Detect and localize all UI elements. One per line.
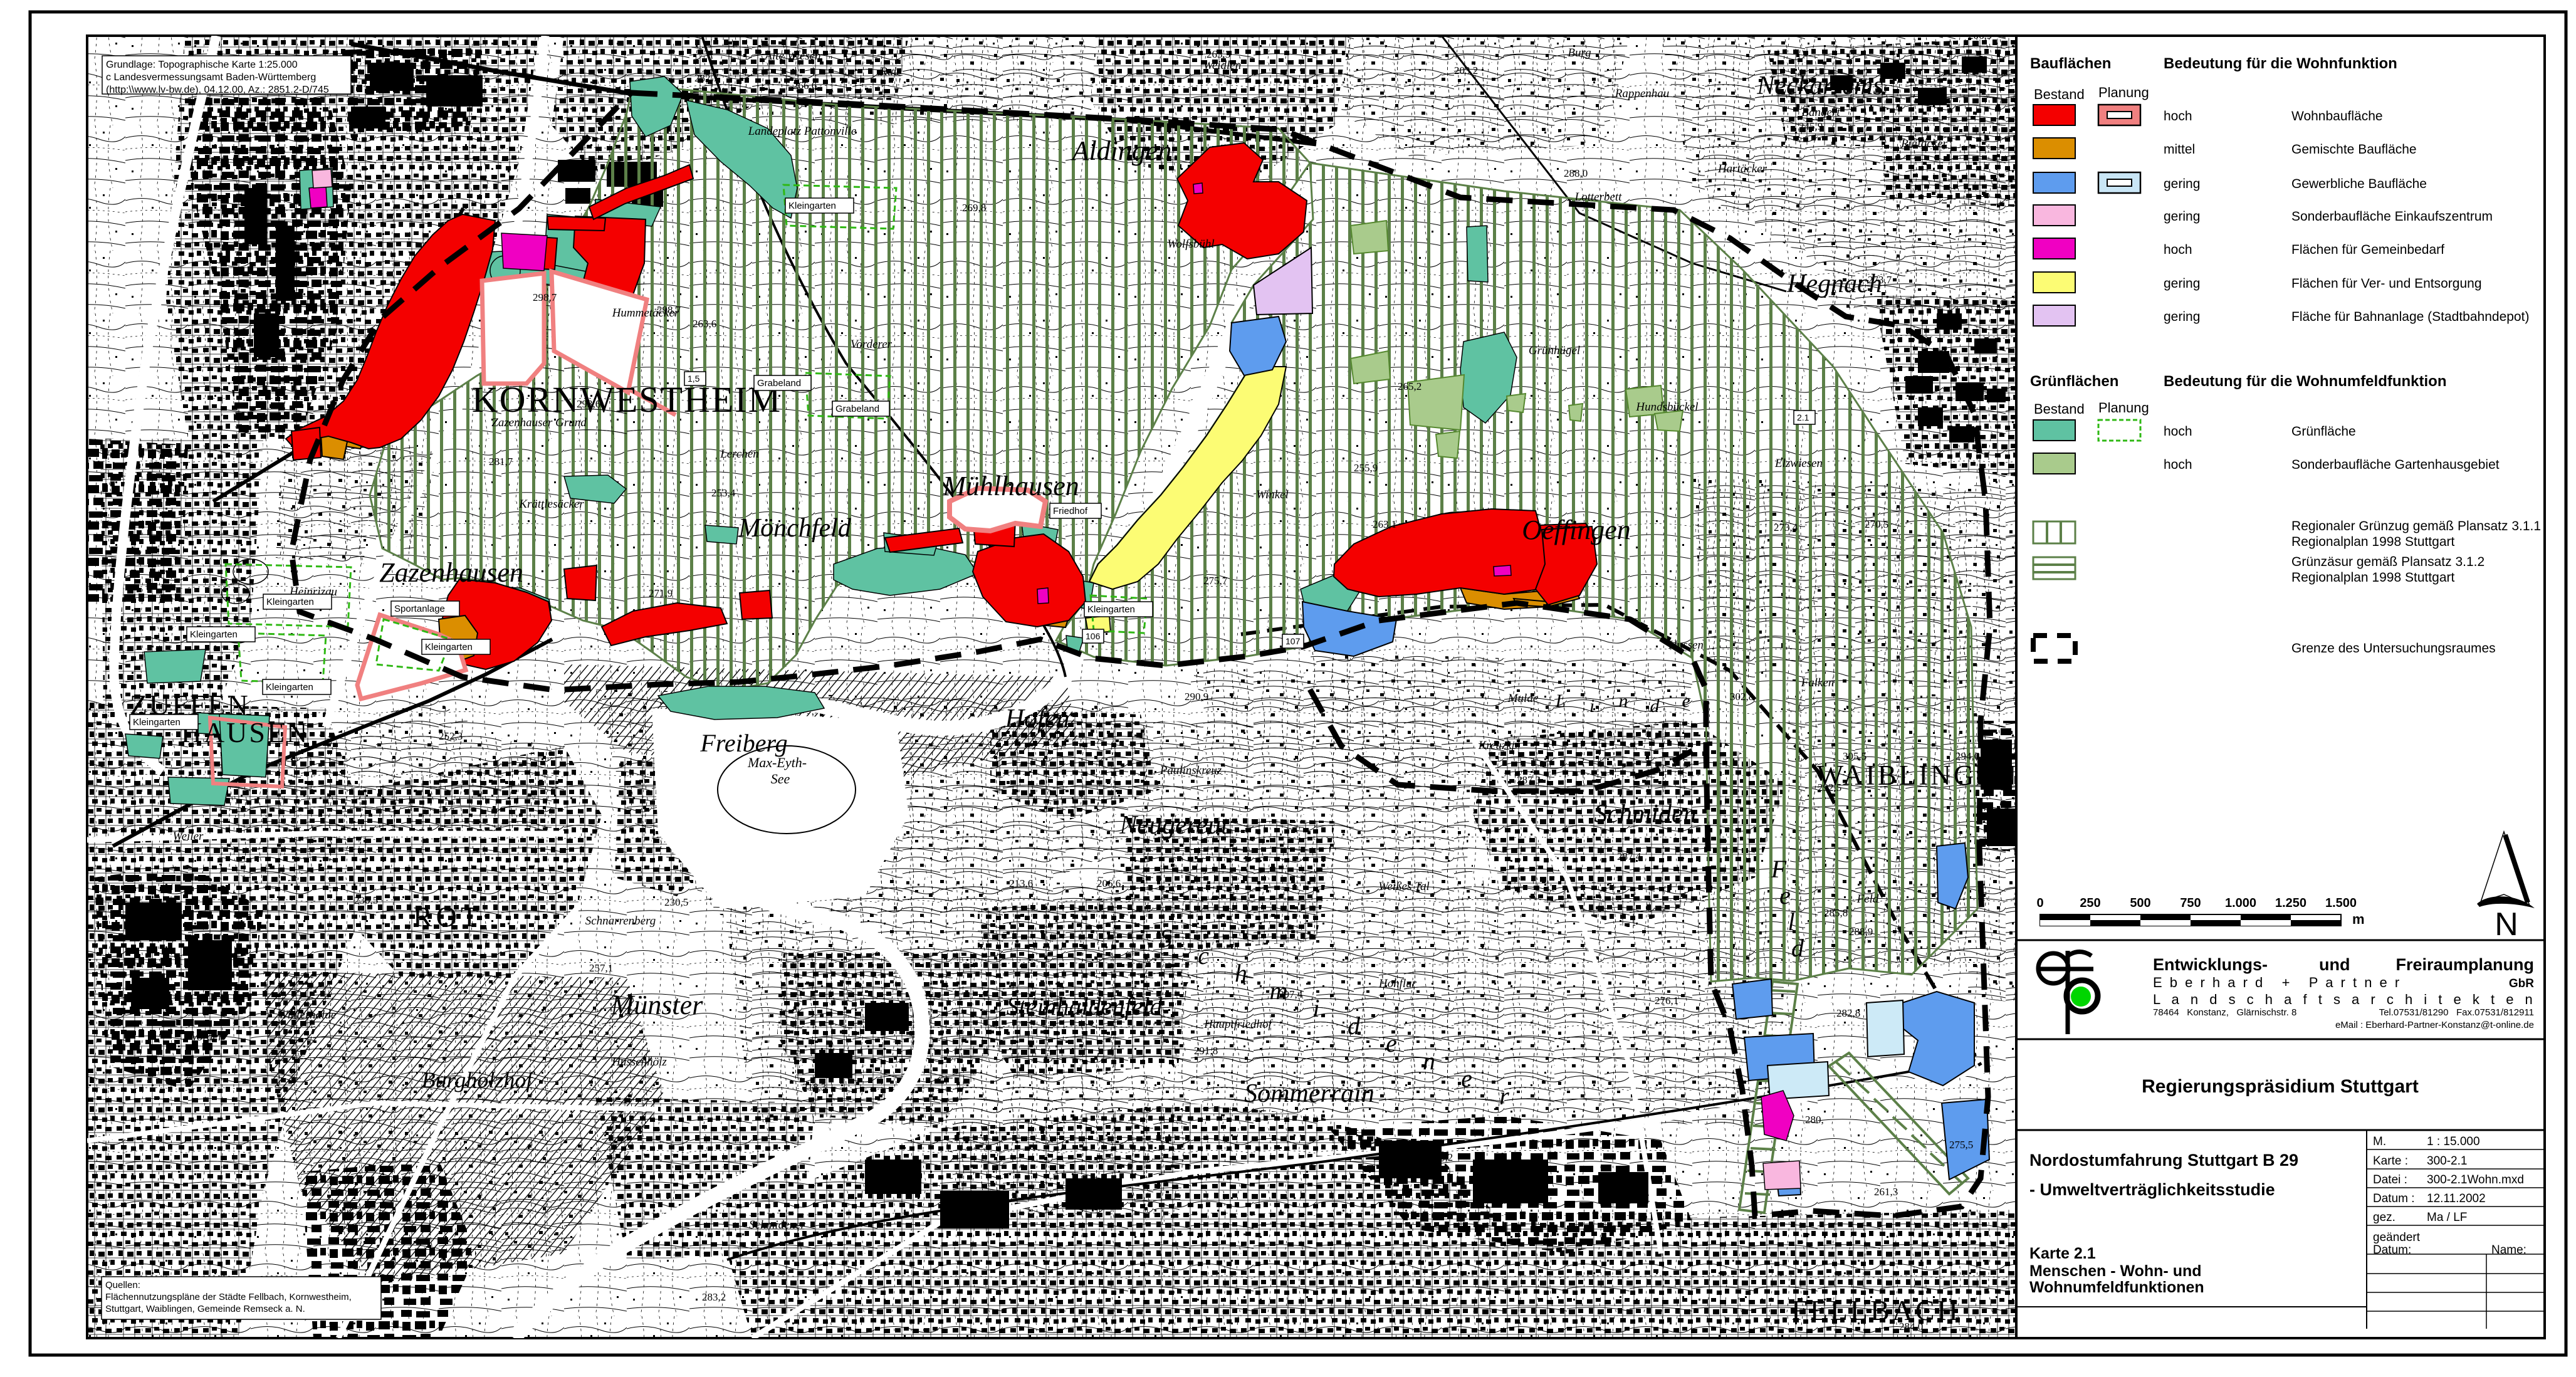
svg-text:Kleingarten: Kleingarten [266, 682, 313, 693]
svg-text:290,9: 290,9 [1185, 691, 1208, 703]
svg-text:Aldingen: Aldingen [1071, 135, 1172, 166]
svg-text:291,8: 291,8 [1194, 1045, 1218, 1057]
svg-text:1,5: 1,5 [688, 374, 700, 384]
svg-text:Fläche für Bahnanlage (Stadtba: Fläche für Bahnanlage (Stadtbahndepot) [2291, 310, 2529, 324]
svg-text:n: n [1619, 691, 1628, 711]
svg-text:d: d [1348, 1012, 1361, 1040]
svg-text:273,4: 273,4 [1774, 521, 1798, 533]
svg-text:gez.: gez. [2373, 1211, 2395, 1224]
svg-text:Kleingarten: Kleingarten [788, 201, 836, 211]
svg-text:302,8: 302,8 [1730, 691, 1754, 703]
svg-text:292,5: 292,5 [1818, 782, 1841, 793]
svg-text:1.500: 1.500 [2325, 896, 2357, 910]
svg-text:Neckarrems: Neckarrems [1756, 71, 1883, 100]
svg-text:305,5: 305,5 [1843, 750, 1867, 762]
svg-text:e: e [1682, 691, 1690, 711]
svg-text:297,4: 297,4 [1279, 988, 1303, 1000]
svg-text:Sonderbaufläche Gartenhausgebi: Sonderbaufläche Gartenhausgebiet [2291, 458, 2500, 472]
svg-text:Sonderbaufläche Einkaufszentru: Sonderbaufläche Einkaufszentrum [2291, 209, 2493, 224]
svg-text:500: 500 [2130, 896, 2150, 910]
svg-text:Quellen:: Quellen: [105, 1280, 140, 1291]
svg-text:eMail : Eberhard-Partner-Konst: eMail : Eberhard-Partner-Konstanz@t-onli… [2335, 1020, 2534, 1030]
svg-text:Steinhaldenfeld: Steinhaldenfeld [1007, 992, 1163, 1020]
svg-text:Münster: Münster [610, 990, 704, 1020]
svg-text:286,2: 286,2 [1429, 1151, 1453, 1163]
svg-text:WAIBLINGEN: WAIBLINGEN [1817, 760, 2019, 791]
svg-text:78464 Konstanz, Glärnischs: 78464 Konstanz, Glärnischstr. 8 [2153, 1007, 2296, 1018]
svg-text:203,2: 203,2 [1454, 65, 1478, 76]
svg-text:gering: gering [2164, 177, 2200, 191]
svg-text:Schmiden: Schmiden [1594, 800, 1696, 829]
svg-text:Sommerrain: Sommerrain [1244, 1079, 1374, 1108]
svg-text:Bangert: Bangert [1801, 106, 1840, 119]
svg-text:0: 0 [2036, 896, 2043, 910]
svg-text:und: und [2319, 955, 2350, 974]
svg-text:Hundsbückel: Hundsbückel [1635, 401, 1698, 414]
svg-text:gering: gering [2164, 209, 2200, 224]
svg-text:Datum:: Datum: [2373, 1243, 2411, 1257]
svg-text:Entwicklungs-: Entwicklungs- [2153, 955, 2268, 974]
svg-text:Regierungspräsidium Stuttgart: Regierungspräsidium Stuttgart [2142, 1076, 2419, 1097]
svg-text:Freiraumplanung: Freiraumplanung [2395, 955, 2534, 974]
svg-text:Wolfsbühl: Wolfsbühl [1167, 238, 1214, 251]
svg-text:1.250: 1.250 [2275, 896, 2306, 910]
svg-text:Lerchen: Lerchen [720, 448, 759, 461]
svg-text:107: 107 [1285, 636, 1301, 646]
svg-text:245,9: 245,9 [1799, 120, 1823, 132]
svg-text:1.000: 1.000 [2225, 896, 2256, 910]
svg-text:Nordostumfahrung Stuttgart B 2: Nordostumfahrung Stuttgart B 29 [2029, 1151, 2298, 1170]
svg-text:Grünzäsur gemäß Plansatz 3.1.2: Grünzäsur gemäß Plansatz 3.1.2 [2291, 555, 2484, 569]
svg-text:hoch: hoch [2164, 109, 2192, 123]
svg-text:Mühlhausen: Mühlhausen [942, 471, 1079, 501]
svg-text:206,6: 206,6 [1097, 877, 1121, 889]
svg-text:d: d [1791, 934, 1804, 962]
svg-text:270,5: 270,5 [1865, 518, 1888, 530]
svg-text:(http:\\www.lv-bw.de), 04.12.0: (http:\\www.lv-bw.de), 04.12.00, Az.: 28… [106, 85, 329, 95]
svg-text:h: h [1235, 959, 1247, 987]
svg-text:Vorder: Vorder [191, 1030, 223, 1044]
svg-text:Bedeutung für die Wohnfunktion: Bedeutung für die Wohnfunktion [2164, 55, 2397, 72]
svg-text:KORNWESTHEIM: KORNWESTHEIM [472, 379, 782, 420]
svg-text:263,3: 263,3 [1207, 48, 1230, 60]
svg-text:gering: gering [2164, 276, 2200, 291]
svg-text:Mulde: Mulde [1507, 692, 1539, 705]
svg-text:Grünfläche: Grünfläche [2291, 424, 2356, 439]
svg-text:gering: gering [2164, 310, 2200, 324]
svg-text:Karte :: Karte : [2373, 1154, 2408, 1168]
svg-text:275,5: 275,5 [1949, 1139, 1973, 1151]
svg-text:250: 250 [2080, 896, 2100, 910]
svg-text:Weißes Tal: Weißes Tal [1378, 880, 1429, 893]
svg-text:Regionalplan 1998 Stuttgart: Regionalplan 1998 Stuttgart [2291, 570, 2455, 585]
svg-text:275,7: 275,7 [1203, 575, 1228, 587]
svg-text:FELLBACH: FELLBACH [1791, 1294, 1961, 1326]
svg-text:Neugereut: Neugereut [1119, 811, 1229, 840]
svg-text:280,: 280, [1805, 1114, 1824, 1126]
svg-text:Vorderer: Vorderer [851, 338, 893, 351]
svg-text:Regionalplan 1998 Stuttgart: Regionalplan 1998 Stuttgart [2291, 535, 2455, 549]
svg-text:261,3: 261,3 [1874, 1186, 1898, 1198]
svg-text:Friedhof: Friedhof [1053, 506, 1088, 516]
svg-text:Datei :: Datei : [2373, 1173, 2407, 1186]
svg-text:d: d [1650, 696, 1660, 716]
svg-text:263,6: 263,6 [693, 318, 716, 330]
svg-text:Kleingarten: Kleingarten [266, 597, 314, 607]
svg-text:Zazenhausen: Zazenhausen [379, 557, 523, 588]
svg-text:298,7: 298,7 [657, 304, 681, 316]
svg-text:HAUSEN: HAUSEN [181, 716, 310, 748]
svg-text:Weidlen: Weidlen [1203, 59, 1242, 72]
svg-text:282,8: 282,8 [1836, 1007, 1860, 1019]
svg-text:294,6: 294,6 [1956, 750, 1979, 762]
svg-text:281,7: 281,7 [489, 456, 513, 468]
svg-text:N: N [2495, 906, 2518, 943]
svg-text:Kleingarten: Kleingarten [425, 642, 473, 652]
svg-text:S: S [1160, 924, 1172, 952]
svg-text:Landeplatz Pattonville: Landeplatz Pattonville [748, 125, 857, 138]
svg-text:300-2.1: 300-2.1 [2427, 1154, 2467, 1168]
svg-text:Ma / LF: Ma / LF [2427, 1211, 2467, 1224]
svg-text:106: 106 [1086, 631, 1101, 641]
svg-text:Hofen: Hofen [1005, 704, 1070, 733]
svg-text:Burg: Burg [1568, 46, 1591, 60]
svg-text:Grünflächen: Grünflächen [2030, 373, 2118, 390]
svg-text:Hartäcker: Hartäcker [1717, 162, 1767, 175]
svg-text:Menschen - Wohn- und: Menschen - Wohn- und [2029, 1262, 2202, 1280]
svg-text:252,3: 252,3 [439, 730, 463, 742]
svg-text:Flächen für Gemeinbedarf: Flächen für Gemeinbedarf [2291, 243, 2444, 257]
svg-text:750: 750 [2180, 896, 2201, 910]
svg-text:- Umweltverträglichkeitsstudie: - Umweltverträglichkeitsstudie [2029, 1180, 2275, 1199]
svg-text:285,8: 285,8 [1824, 907, 1848, 919]
svg-text:266,6: 266,6 [793, 80, 817, 92]
svg-text:271,9: 271,9 [649, 587, 673, 599]
svg-text:Hauptfriedhof: Hauptfriedhof [1203, 1018, 1273, 1031]
svg-text:287,4: 287,4 [1617, 851, 1641, 862]
svg-text:Winkel: Winkel [1256, 488, 1289, 501]
svg-text:284,0: 284,0 [1899, 1321, 1923, 1332]
svg-text:r: r [1499, 1082, 1509, 1110]
svg-text:276,1: 276,1 [1655, 995, 1678, 1007]
svg-text:Zazenhauser Grund: Zazenhauser Grund [491, 416, 587, 429]
svg-text:Grünhügel: Grünhügel [1529, 344, 1580, 357]
svg-text:Hussenhölz: Hussenhölz [611, 1055, 667, 1069]
svg-text:273,7: 273,7 [1868, 274, 1892, 286]
svg-text:Kleingarten: Kleingarten [133, 717, 181, 728]
svg-text:mittel: mittel [2164, 142, 2195, 157]
svg-text:300-2.1Wohn.mxd: 300-2.1Wohn.mxd [2427, 1173, 2524, 1186]
svg-text:283,2: 283,2 [702, 1291, 726, 1303]
svg-text:Grabeland: Grabeland [757, 378, 801, 389]
svg-text:Freiberg: Freiberg [699, 729, 787, 757]
svg-text:Karte 2.1: Karte 2.1 [2029, 1245, 2096, 1262]
svg-text:Planung: Planung [2098, 85, 2149, 100]
svg-text:253,4: 253,4 [711, 487, 736, 499]
svg-text:12.11.2002: 12.11.2002 [2427, 1192, 2486, 1205]
svg-text:Bestand: Bestand [2034, 401, 2085, 417]
svg-text:GbR: GbR [2509, 977, 2534, 990]
svg-text:i: i [1589, 696, 1594, 716]
svg-text:230,5: 230,5 [664, 896, 688, 908]
svg-text:Bauflächen: Bauflächen [2030, 55, 2111, 72]
svg-text:287,3: 287,3 [1517, 774, 1541, 786]
svg-text:288,9: 288,9 [1849, 926, 1873, 938]
svg-text:1 : 15.000: 1 : 15.000 [2427, 1135, 2480, 1148]
svg-text:Gemischte Baufläche: Gemischte Baufläche [2291, 142, 2417, 157]
svg-text:269,8: 269,8 [962, 202, 986, 214]
svg-text:n: n [1423, 1047, 1435, 1075]
svg-text:e: e [1461, 1064, 1472, 1092]
svg-text:L a n d s c h a f t s a r c h: L a n d s c h a f t s a r c h i t e k t … [2153, 992, 2537, 1007]
svg-text:Wohnumfeldfunktionen: Wohnumfeldfunktionen [2029, 1279, 2204, 1296]
svg-text:Stuttgart, Waiblingen, Gemeind: Stuttgart, Waiblingen, Gemeinde Remseck … [105, 1304, 305, 1314]
svg-text:Tel.07531/81290 Fax.07531/81: Tel.07531/81290 Fax.07531/812911 [2379, 1007, 2534, 1018]
svg-text:Bedeutung für die Wohnumfeldfu: Bedeutung für die Wohnumfeldfunktion [2164, 373, 2447, 390]
svg-text:L: L [1555, 691, 1566, 711]
svg-text:m: m [2352, 911, 2365, 927]
svg-text:Elzwiesen: Elzwiesen [1774, 457, 1823, 470]
svg-text:Grundlage: Topographische Kart: Grundlage: Topographische Karte 1:25.000 [106, 60, 298, 70]
svg-text:Ruit: Ruit [879, 65, 900, 78]
svg-text:e: e [1779, 881, 1791, 909]
svg-text:hoch: hoch [2164, 424, 2192, 439]
svg-text:Flächennutzungspläne der Städt: Flächennutzungspläne der Städte Fellbach… [105, 1292, 352, 1302]
svg-text:Weiler: Weiler [173, 830, 204, 843]
svg-text:Hohflur: Hohflur [1378, 977, 1417, 990]
svg-text:Bestand: Bestand [2034, 86, 2085, 102]
svg-text:Paulinskreuz: Paulinskreuz [1160, 764, 1222, 777]
svg-text:265,2: 265,2 [1398, 380, 1422, 392]
svg-text:Planung: Planung [2098, 400, 2149, 416]
svg-text:Max-Eyth-: Max-Eyth- [747, 755, 807, 770]
svg-text:hoch: hoch [2164, 243, 2192, 257]
svg-text:263,1: 263,1 [1373, 518, 1396, 530]
svg-text:E b e r h a r d + P a r t: E b e r h a r d + P a r t n e r [2153, 975, 2401, 990]
svg-text:See: See [771, 771, 790, 787]
svg-text:257,1: 257,1 [589, 962, 613, 974]
svg-text:Alte Wiesen: Alte Wiesen [763, 50, 820, 63]
svg-text:Falken: Falken [1801, 676, 1835, 689]
svg-text:Gewerbliche Baufläche: Gewerbliche Baufläche [2291, 177, 2427, 191]
svg-text:Winterhalde: Winterhalde [278, 1008, 337, 1022]
svg-text:218,3: 218,3 [802, 1081, 826, 1093]
svg-text:Kreuzkp: Kreuzkp [1478, 739, 1518, 752]
svg-text:hoch: hoch [2164, 458, 2192, 472]
svg-text:Grenze des Untersuchungsraumes: Grenze des Untersuchungsraumes [2291, 641, 2496, 656]
svg-text:Ruitäcker: Ruitäcker [1900, 137, 1947, 150]
svg-text:Kleingarten: Kleingarten [1087, 604, 1135, 615]
svg-text:Regionaler Grünzug gemäß Plans: Regionaler Grünzug gemäß Plansatz 3.1.1 [2291, 519, 2541, 533]
svg-text:Name:: Name: [2491, 1243, 2526, 1257]
svg-text:288,0: 288,0 [1564, 167, 1588, 179]
svg-text:298,7: 298,7 [533, 291, 557, 303]
svg-text:Grabeland: Grabeland [835, 404, 879, 414]
svg-text:Flächen für Ver- und Entsorgun: Flächen für Ver- und Entsorgung [2291, 276, 2482, 291]
svg-text:293,6: 293,6 [577, 398, 600, 410]
svg-text:geändert: geändert [2373, 1231, 2421, 1244]
svg-text:230,5: 230,5 [354, 894, 378, 906]
svg-text:Hussen: Hussen [1668, 639, 1704, 652]
svg-text:2.1: 2.1 [1797, 412, 1809, 422]
svg-text:Lotterbett: Lotterbett [1574, 191, 1623, 204]
svg-text:Feld: Feld [1856, 893, 1879, 906]
svg-text:Datum :: Datum : [2373, 1192, 2415, 1205]
svg-text:213,6: 213,6 [1009, 877, 1033, 889]
svg-text:Wohnbaufläche: Wohnbaufläche [2291, 109, 2383, 123]
svg-text:M.: M. [2373, 1135, 2386, 1148]
svg-text:255,9: 255,9 [1354, 462, 1378, 474]
svg-text:i: i [1312, 994, 1319, 1022]
svg-text:Schmidener: Schmidener [749, 1218, 805, 1232]
svg-text:Mönchfeld: Mönchfeld [738, 514, 852, 543]
svg-text:Krättlesäcker: Krättlesäcker [518, 498, 584, 511]
svg-text:282,7: 282,7 [694, 72, 719, 84]
svg-text:F: F [1771, 855, 1787, 883]
svg-text:Rappenhau: Rappenhau [1615, 87, 1670, 100]
svg-text:Oeffingen: Oeffingen [1522, 515, 1631, 545]
svg-text:c: c [1198, 941, 1209, 970]
svg-text:Sportanlage: Sportanlage [394, 604, 445, 614]
svg-text:c Landesvermessungsamt Baden-W: c Landesvermessungsamt Baden-Württemberg [106, 72, 316, 83]
svg-text:e: e [1386, 1029, 1397, 1057]
svg-text:ROT: ROT [413, 901, 482, 933]
svg-text:l: l [1788, 908, 1794, 936]
svg-text:Burgholzhof: Burgholzhof [422, 1067, 536, 1092]
svg-text:Kleingarten: Kleingarten [190, 629, 238, 640]
svg-text:Schnarrenberg: Schnarrenberg [585, 914, 656, 928]
